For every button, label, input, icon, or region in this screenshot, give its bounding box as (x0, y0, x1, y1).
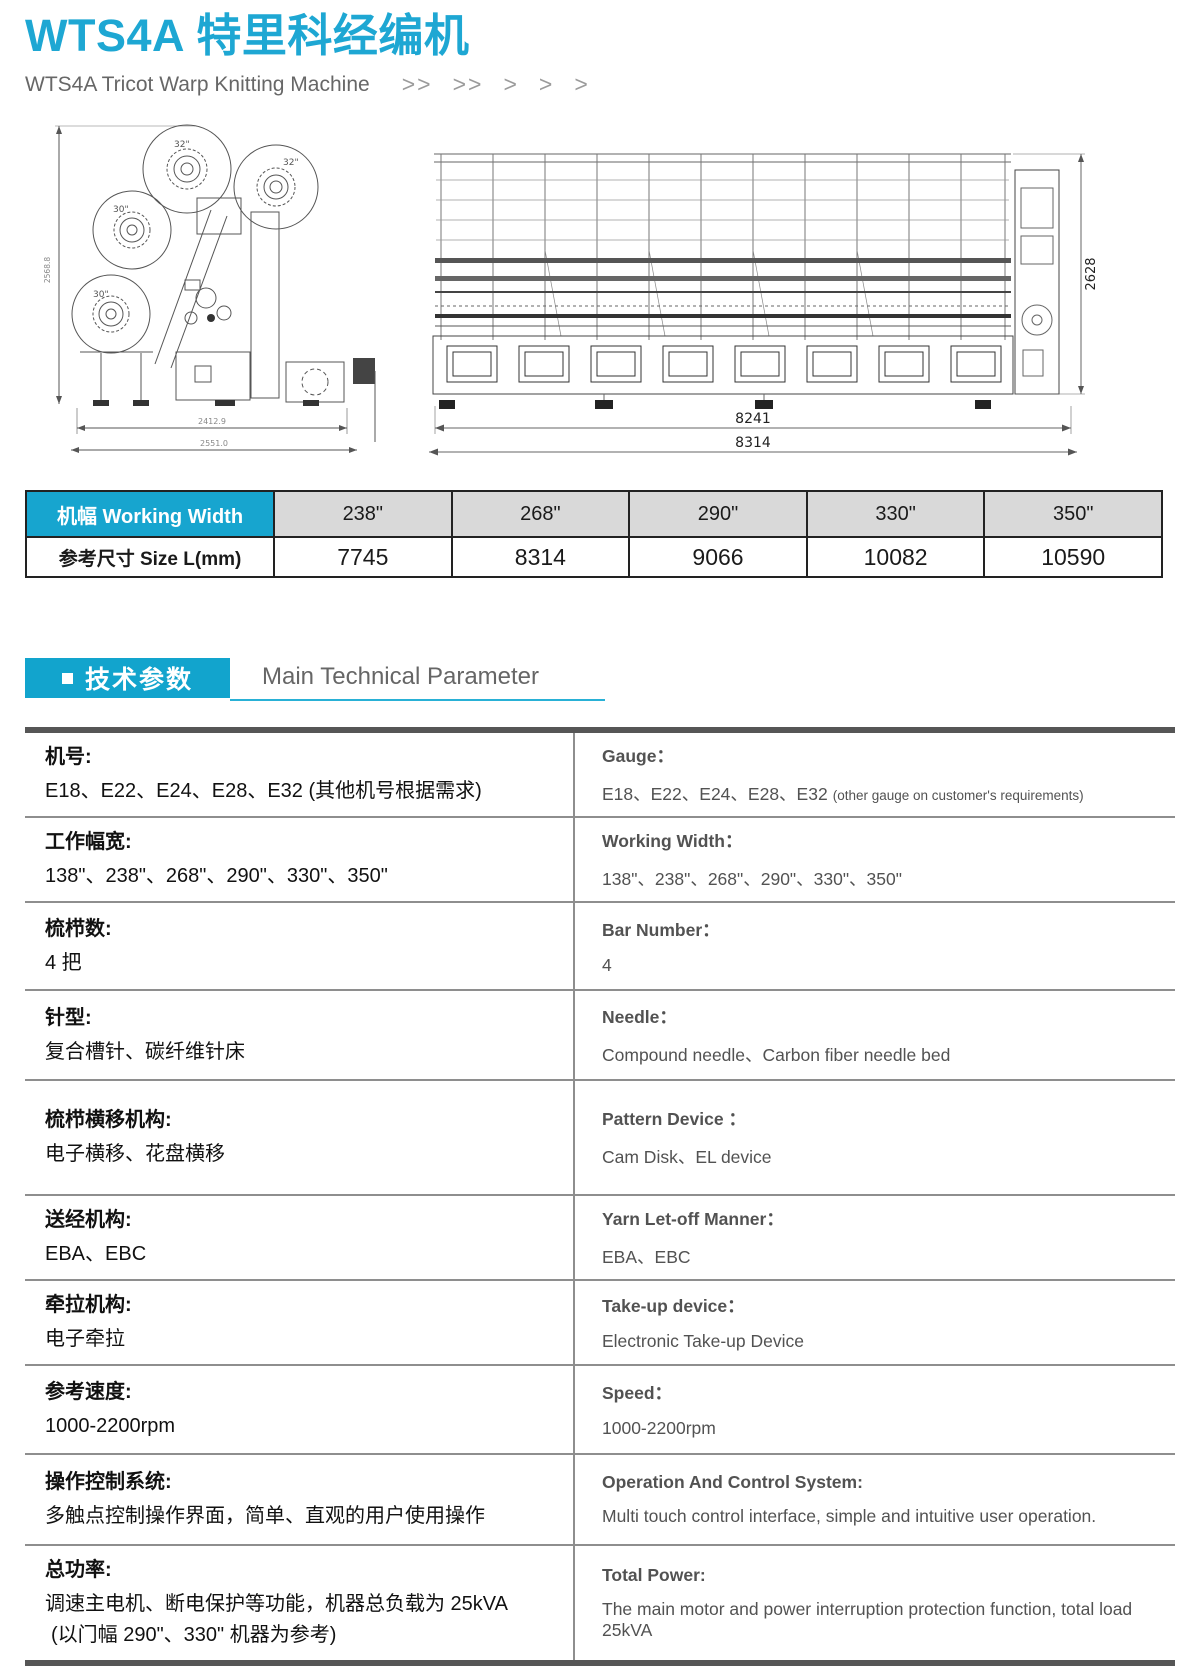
spec-en-value: Electronic Take-up Device (602, 1331, 1163, 1352)
spec-en-label: Pattern Device ： (602, 1106, 1163, 1131)
spec-zh-label: 牵拉机构: (45, 1291, 561, 1320)
spec-zh-label: 梳栉横移机构: (45, 1106, 561, 1135)
spec-en-label: Yarn Let-off Manner： (602, 1206, 1163, 1231)
spec-en-value: Multi touch control interface, simple an… (602, 1506, 1163, 1527)
chevron-icon: > (539, 71, 554, 98)
spec-en-value: The main motor and power interruption pr… (602, 1599, 1163, 1641)
beam-label: 30" (93, 290, 109, 300)
front-height-dim: 2628 (1084, 257, 1099, 290)
square-bullet-icon (62, 673, 73, 684)
spec-zh-value: 4 把 (45, 949, 561, 978)
section-header: 技术参数 Main Technical Parameter (25, 658, 1200, 698)
spec-zh-label: 总功率: (45, 1556, 561, 1585)
spec-zh-value: 电子牵拉 (45, 1325, 561, 1354)
spec-en-value: EBA、EBC (602, 1244, 1163, 1269)
chevron-icon: > (574, 71, 589, 98)
spec-en-label: Total Power: (602, 1565, 1163, 1586)
spec-row-speed: 参考速度: 1000-2200rpm Speed： 1000-2200rpm (25, 1364, 1175, 1453)
beam-label: 32" (283, 158, 299, 168)
spec-zh-value2: (以门幅 290"、330" 机器为参考) (45, 1621, 561, 1650)
side-height-dim: 2568.8 (43, 257, 52, 283)
spec-zh-value: 1000-2200rpm (45, 1412, 561, 1441)
spec-en-label: Working Width： (602, 828, 1163, 853)
spec-en-value: E18、E22、E24、E28、E32(other gauge on custo… (602, 781, 1163, 806)
spec-en-value: Cam Disk、EL device (602, 1144, 1163, 1169)
section-title-en: Main Technical Parameter (262, 663, 539, 691)
beam-label: 32" (174, 140, 190, 150)
spec-en-value: Compound needle、Carbon fiber needle bed (602, 1042, 1163, 1067)
width-column-header: 350" (983, 492, 1161, 536)
side-width-dim-top: 2412.9 (198, 417, 226, 426)
spec-en-label: Take-up device： (602, 1293, 1163, 1318)
width-column-header: 330" (806, 492, 984, 536)
spec-en-label: Speed： (602, 1380, 1163, 1405)
spec-zh-label: 针型: (45, 1004, 561, 1033)
size-value: 10590 (983, 536, 1161, 576)
spec-zh-value: 复合槽针、碳纤维针床 (45, 1038, 561, 1067)
spec-table: 机号: E18、E22、E24、E28、E32 (其他机号根据需求) Gauge… (25, 727, 1175, 1666)
front-width-dim-inner: 8241 (735, 411, 771, 427)
front-width-dim-outer: 8314 (735, 435, 771, 451)
chevron-icon: > (503, 71, 518, 98)
spec-zh-value: 138"、238"、268"、290"、330"、350" (45, 862, 561, 891)
spec-zh-value: EBA、EBC (45, 1240, 561, 1269)
chevron-icon: >> (453, 71, 484, 98)
spec-zh-label: 送经机构: (45, 1206, 561, 1235)
chevron-icon: >> (402, 71, 433, 98)
spec-zh-label: 梳栉数: (45, 915, 561, 944)
spec-zh-value: 电子横移、花盘横移 (45, 1140, 561, 1169)
spec-zh-value: E18、E22、E24、E28、E32 (其他机号根据需求) (45, 777, 561, 806)
working-width-table: 机幅 Working Width 238" 268" 290" 330" 350… (25, 490, 1163, 578)
width-column-header: 268" (451, 492, 629, 536)
page-subtitle: WTS4A Tricot Warp Knitting Machine (25, 73, 370, 97)
spec-row-total-power: 总功率: 调速主电机、断电保护等功能，机器总负载为 25kVA (以门幅 290… (25, 1544, 1175, 1660)
spec-zh-label: 机号: (45, 743, 561, 772)
size-value: 10082 (806, 536, 984, 576)
width-column-header: 290" (628, 492, 806, 536)
spec-row-working-width: 工作幅宽: 138"、238"、268"、290"、330"、350" Work… (25, 816, 1175, 901)
working-width-header: 机幅 Working Width (27, 492, 273, 536)
section-title-box: 技术参数 (25, 658, 230, 698)
chevron-decoration: >> >> > > > (402, 71, 610, 98)
spec-en-value: 1000-2200rpm (602, 1418, 1163, 1439)
side-width-dim-bottom: 2551.0 (200, 439, 228, 448)
spec-en-value: 4 (602, 955, 1163, 976)
size-row-label: 参考尺寸 Size L(mm) (27, 536, 273, 576)
spec-row-needle: 针型: 复合槽针、碳纤维针床 Needle： Compound needle、C… (25, 989, 1175, 1079)
spec-zh-value: 调速主电机、断电保护等功能，机器总负载为 25kVA (45, 1590, 561, 1619)
front-view-drawing: 2628 8241 8314 (419, 140, 1109, 462)
section-title-zh: 技术参数 (85, 660, 193, 696)
spec-row-bar-number: 梳栉数: 4 把 Bar Number： 4 (25, 901, 1175, 989)
spec-zh-value: 多触点控制操作界面，简单、直观的用户使用操作 (45, 1502, 561, 1531)
size-value: 8314 (451, 536, 629, 576)
spec-en-value: 138"、238"、268"、290"、330"、350" (602, 866, 1163, 891)
side-view-drawing: 2568.8 32" 32" 30" 30" (35, 112, 397, 462)
beam-label: 30" (113, 205, 129, 215)
spec-en-label: Bar Number： (602, 917, 1163, 942)
section-underline (230, 699, 605, 701)
technical-drawings: 2568.8 32" 32" 30" 30" (0, 112, 1200, 468)
spec-zh-label: 工作幅宽: (45, 828, 561, 857)
width-column-header: 238" (273, 492, 451, 536)
spec-zh-label: 操作控制系统: (45, 1468, 561, 1497)
spec-en-note: (other gauge on customer's requirements) (833, 788, 1084, 803)
page-header: WTS4A 特里科经编机 WTS4A Tricot Warp Knitting … (0, 0, 1200, 98)
spec-row-control-system: 操作控制系统: 多触点控制操作界面，简单、直观的用户使用操作 Operation… (25, 1453, 1175, 1544)
size-value: 9066 (628, 536, 806, 576)
spec-en-label: Gauge： (602, 743, 1163, 768)
spec-en-label: Needle： (602, 1004, 1163, 1029)
spec-row-yarn-letoff: 送经机构: EBA、EBC Yarn Let-off Manner： EBA、E… (25, 1194, 1175, 1279)
spec-row-gauge: 机号: E18、E22、E24、E28、E32 (其他机号根据需求) Gauge… (25, 733, 1175, 816)
spec-row-take-up: 牵拉机构: 电子牵拉 Take-up device： Electronic Ta… (25, 1279, 1175, 1364)
spec-en-label: Operation And Control System: (602, 1472, 1163, 1493)
page-title: WTS4A 特里科经编机 (25, 10, 1200, 62)
spec-row-pattern-device: 梳栉横移机构: 电子横移、花盘横移 Pattern Device ： Cam D… (25, 1079, 1175, 1194)
size-value: 7745 (273, 536, 451, 576)
spec-zh-label: 参考速度: (45, 1378, 561, 1407)
